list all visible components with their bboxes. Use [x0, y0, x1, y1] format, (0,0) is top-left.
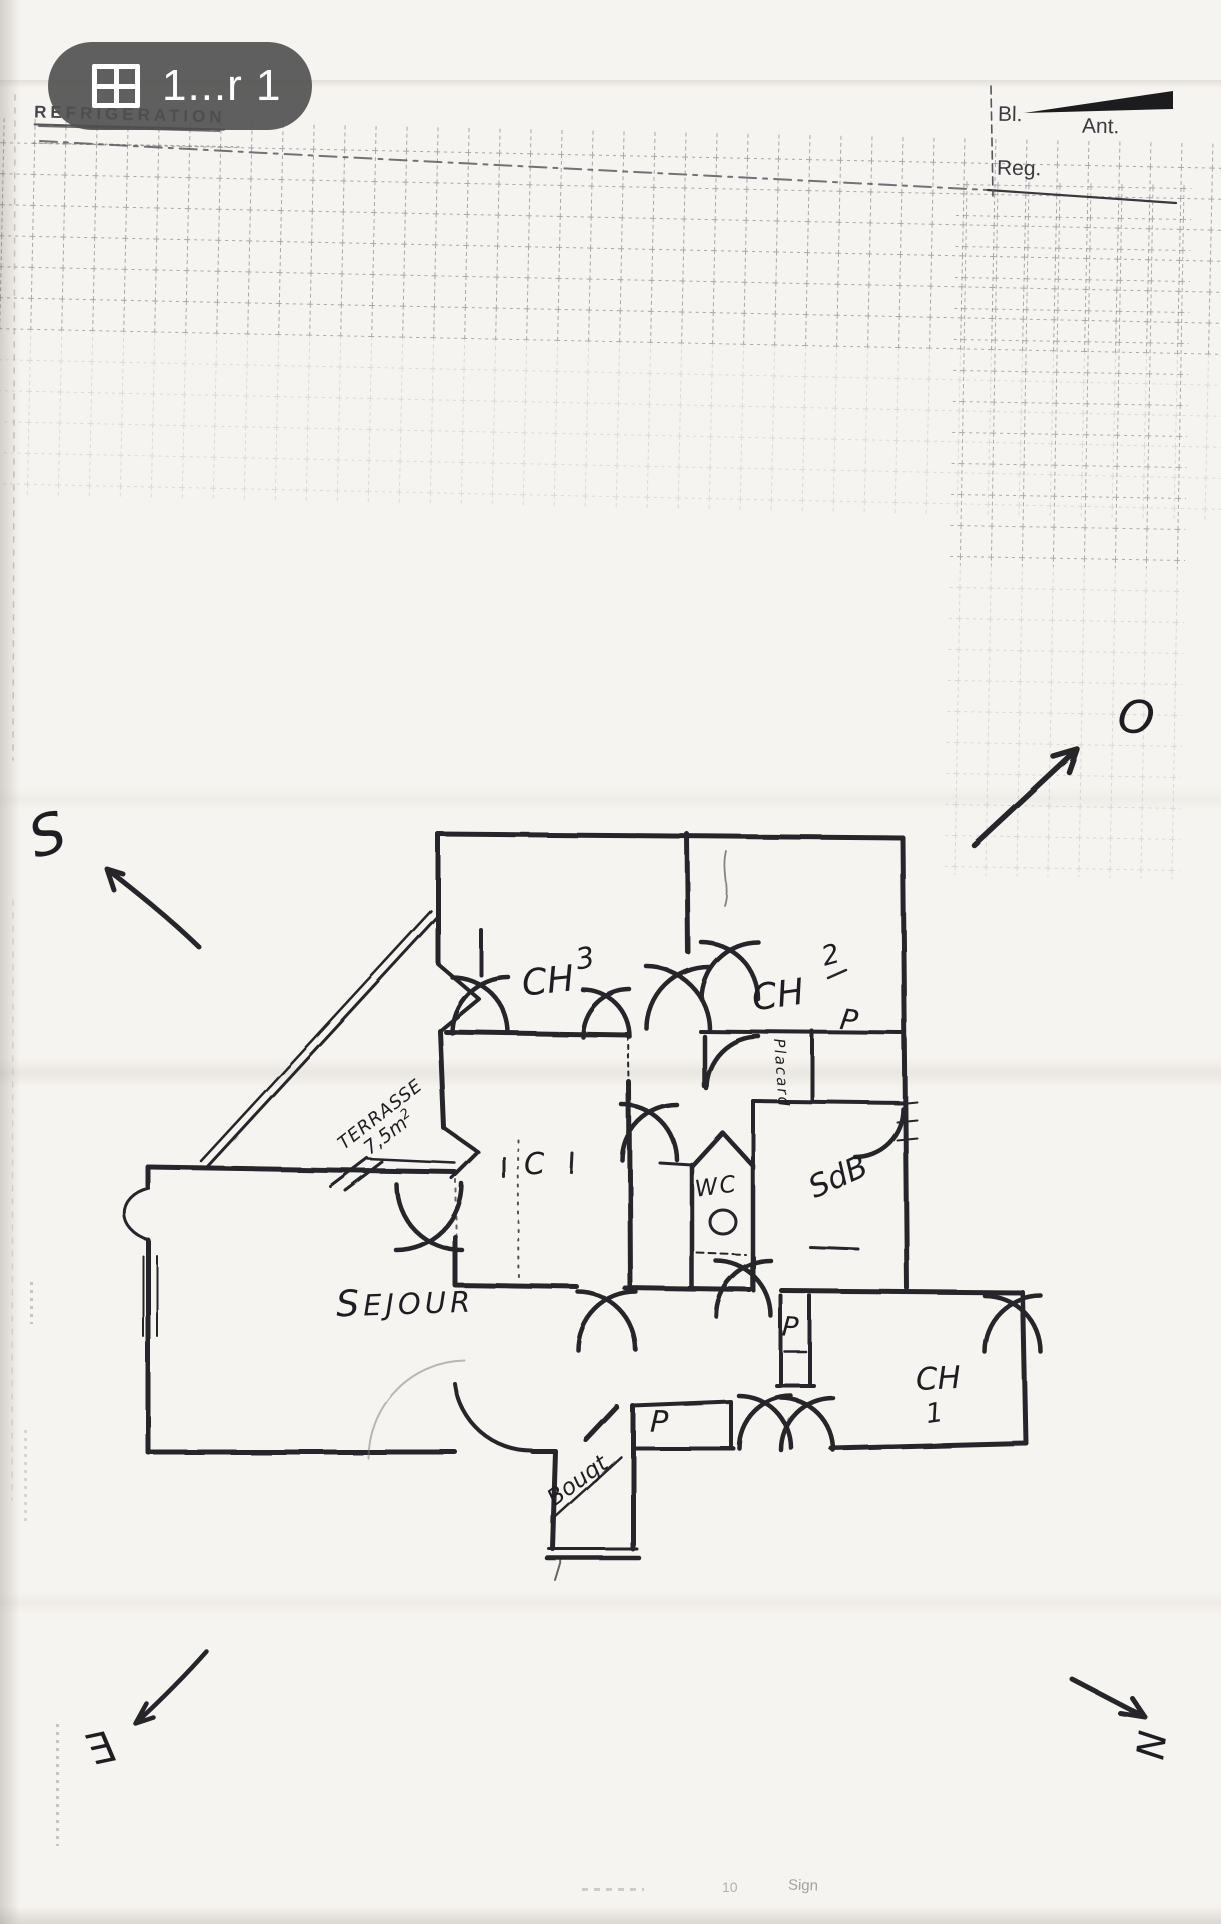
pages-pill-button[interactable]: 1...r 1: [48, 42, 312, 130]
footer-mark-mid: 10: [722, 1880, 738, 1894]
scanned-floor-plan-page: REFRIGERATION: [0, 0, 1221, 1924]
compass-letter-north: N: [1130, 1729, 1171, 1762]
room-label-ch1-number: 1: [924, 1399, 945, 1428]
north-arrow: [1072, 1679, 1145, 1717]
header-field-ant: Ant.: [1082, 116, 1120, 138]
placard-label-ch1: P: [781, 1313, 799, 1341]
compass-arrows: [107, 749, 1145, 1723]
graph-paper-grid: [0, 117, 1221, 879]
pages-grid-icon: [92, 64, 140, 108]
compass-letter-west: O: [1115, 692, 1157, 743]
pages-pill-label: 1...r 1: [162, 64, 282, 108]
south-arrow: [107, 869, 199, 947]
placard-label-top: P: [838, 1005, 859, 1036]
room-label-ch3: CH: [520, 961, 576, 1002]
room-label-ch1: CH: [915, 1363, 962, 1396]
placard-label-hall: P: [649, 1408, 668, 1439]
room-label-ch2: CH: [750, 975, 807, 1018]
east-arrow: [135, 1651, 206, 1723]
footer-mark-sign: Sign: [788, 1877, 819, 1893]
room-label-closet: C: [523, 1149, 546, 1180]
room-label-wc: WC: [694, 1173, 740, 1202]
placard-label-vertical: Placard: [771, 1038, 791, 1108]
header-field-bl: Bl.: [998, 104, 1023, 125]
header-field-reg: Reg.: [997, 158, 1042, 180]
floorplan-drawing: [0, 0, 1221, 1924]
room-label-sejour: SEJOUR: [335, 1282, 474, 1323]
